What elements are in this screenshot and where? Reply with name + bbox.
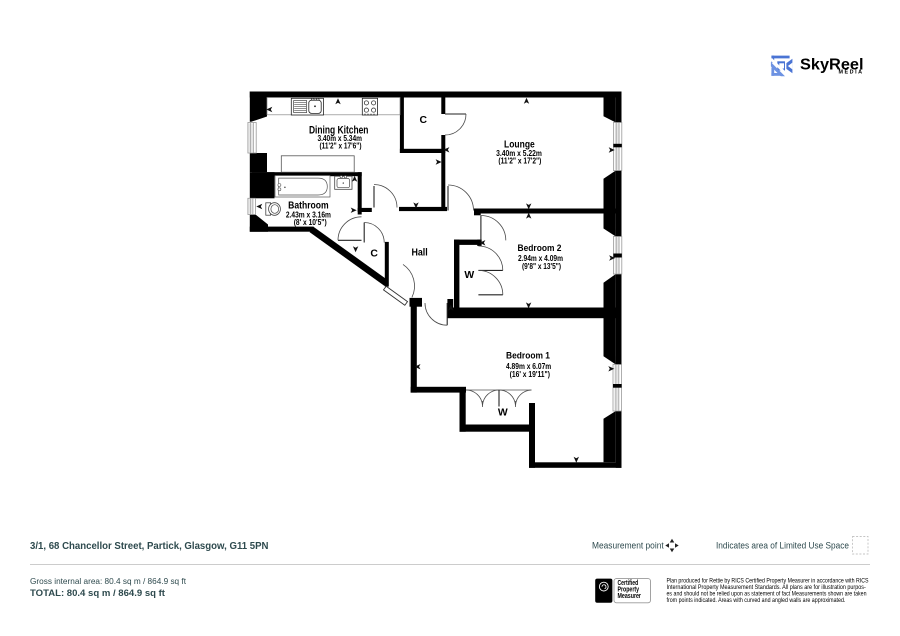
svg-text:(16' x 19'11"): (16' x 19'11") xyxy=(510,369,550,379)
svg-text:from points indicated. Areas w: from points indicated. Areas with curved… xyxy=(667,598,846,604)
svg-text:(9'8" x 13'5"): (9'8" x 13'5") xyxy=(522,261,561,271)
svg-text:International Property Measur: International Property Measurement Stand… xyxy=(667,585,866,591)
svg-text:C: C xyxy=(370,248,378,259)
svg-text:es and should not be relied up: es and should not be relied upon as stat… xyxy=(667,592,867,598)
svg-text:Plan produced for Rettie by RI: Plan produced for Rettie by RICS Certifi… xyxy=(667,579,869,585)
svg-text:3/1, 68 Chancellor Street, Par: 3/1, 68 Chancellor Street, Partick, Glas… xyxy=(30,541,269,552)
svg-text:(11'2" x 17'6"): (11'2" x 17'6") xyxy=(320,140,362,150)
svg-text:Hall: Hall xyxy=(411,248,427,259)
svg-text:Gross internal area: 80.4 sq m: Gross internal area: 80.4 sq m / 864.9 s… xyxy=(30,576,187,586)
svg-text:Bedroom 2: Bedroom 2 xyxy=(518,243,562,253)
svg-text:C: C xyxy=(419,115,427,126)
svg-text:Measurer: Measurer xyxy=(618,593,642,600)
svg-text:W: W xyxy=(464,270,474,281)
svg-text:RICS: RICS xyxy=(596,596,611,603)
svg-text:MEDIA: MEDIA xyxy=(839,70,864,76)
svg-text:Bedroom 1: Bedroom 1 xyxy=(506,350,550,360)
svg-text:(8' x 10'5"): (8' x 10'5") xyxy=(294,217,327,227)
svg-text:TOTAL: 80.4 sq m / 864.9 sq ft: TOTAL: 80.4 sq m / 864.9 sq ft xyxy=(30,588,166,599)
svg-text:Indicates area of Limited Use: Indicates area of Limited Use Space xyxy=(716,540,849,550)
svg-text:W: W xyxy=(498,407,508,418)
svg-text:Measurement point: Measurement point xyxy=(592,540,664,550)
svg-text:(11'2" x 17'2"): (11'2" x 17'2") xyxy=(498,155,541,165)
